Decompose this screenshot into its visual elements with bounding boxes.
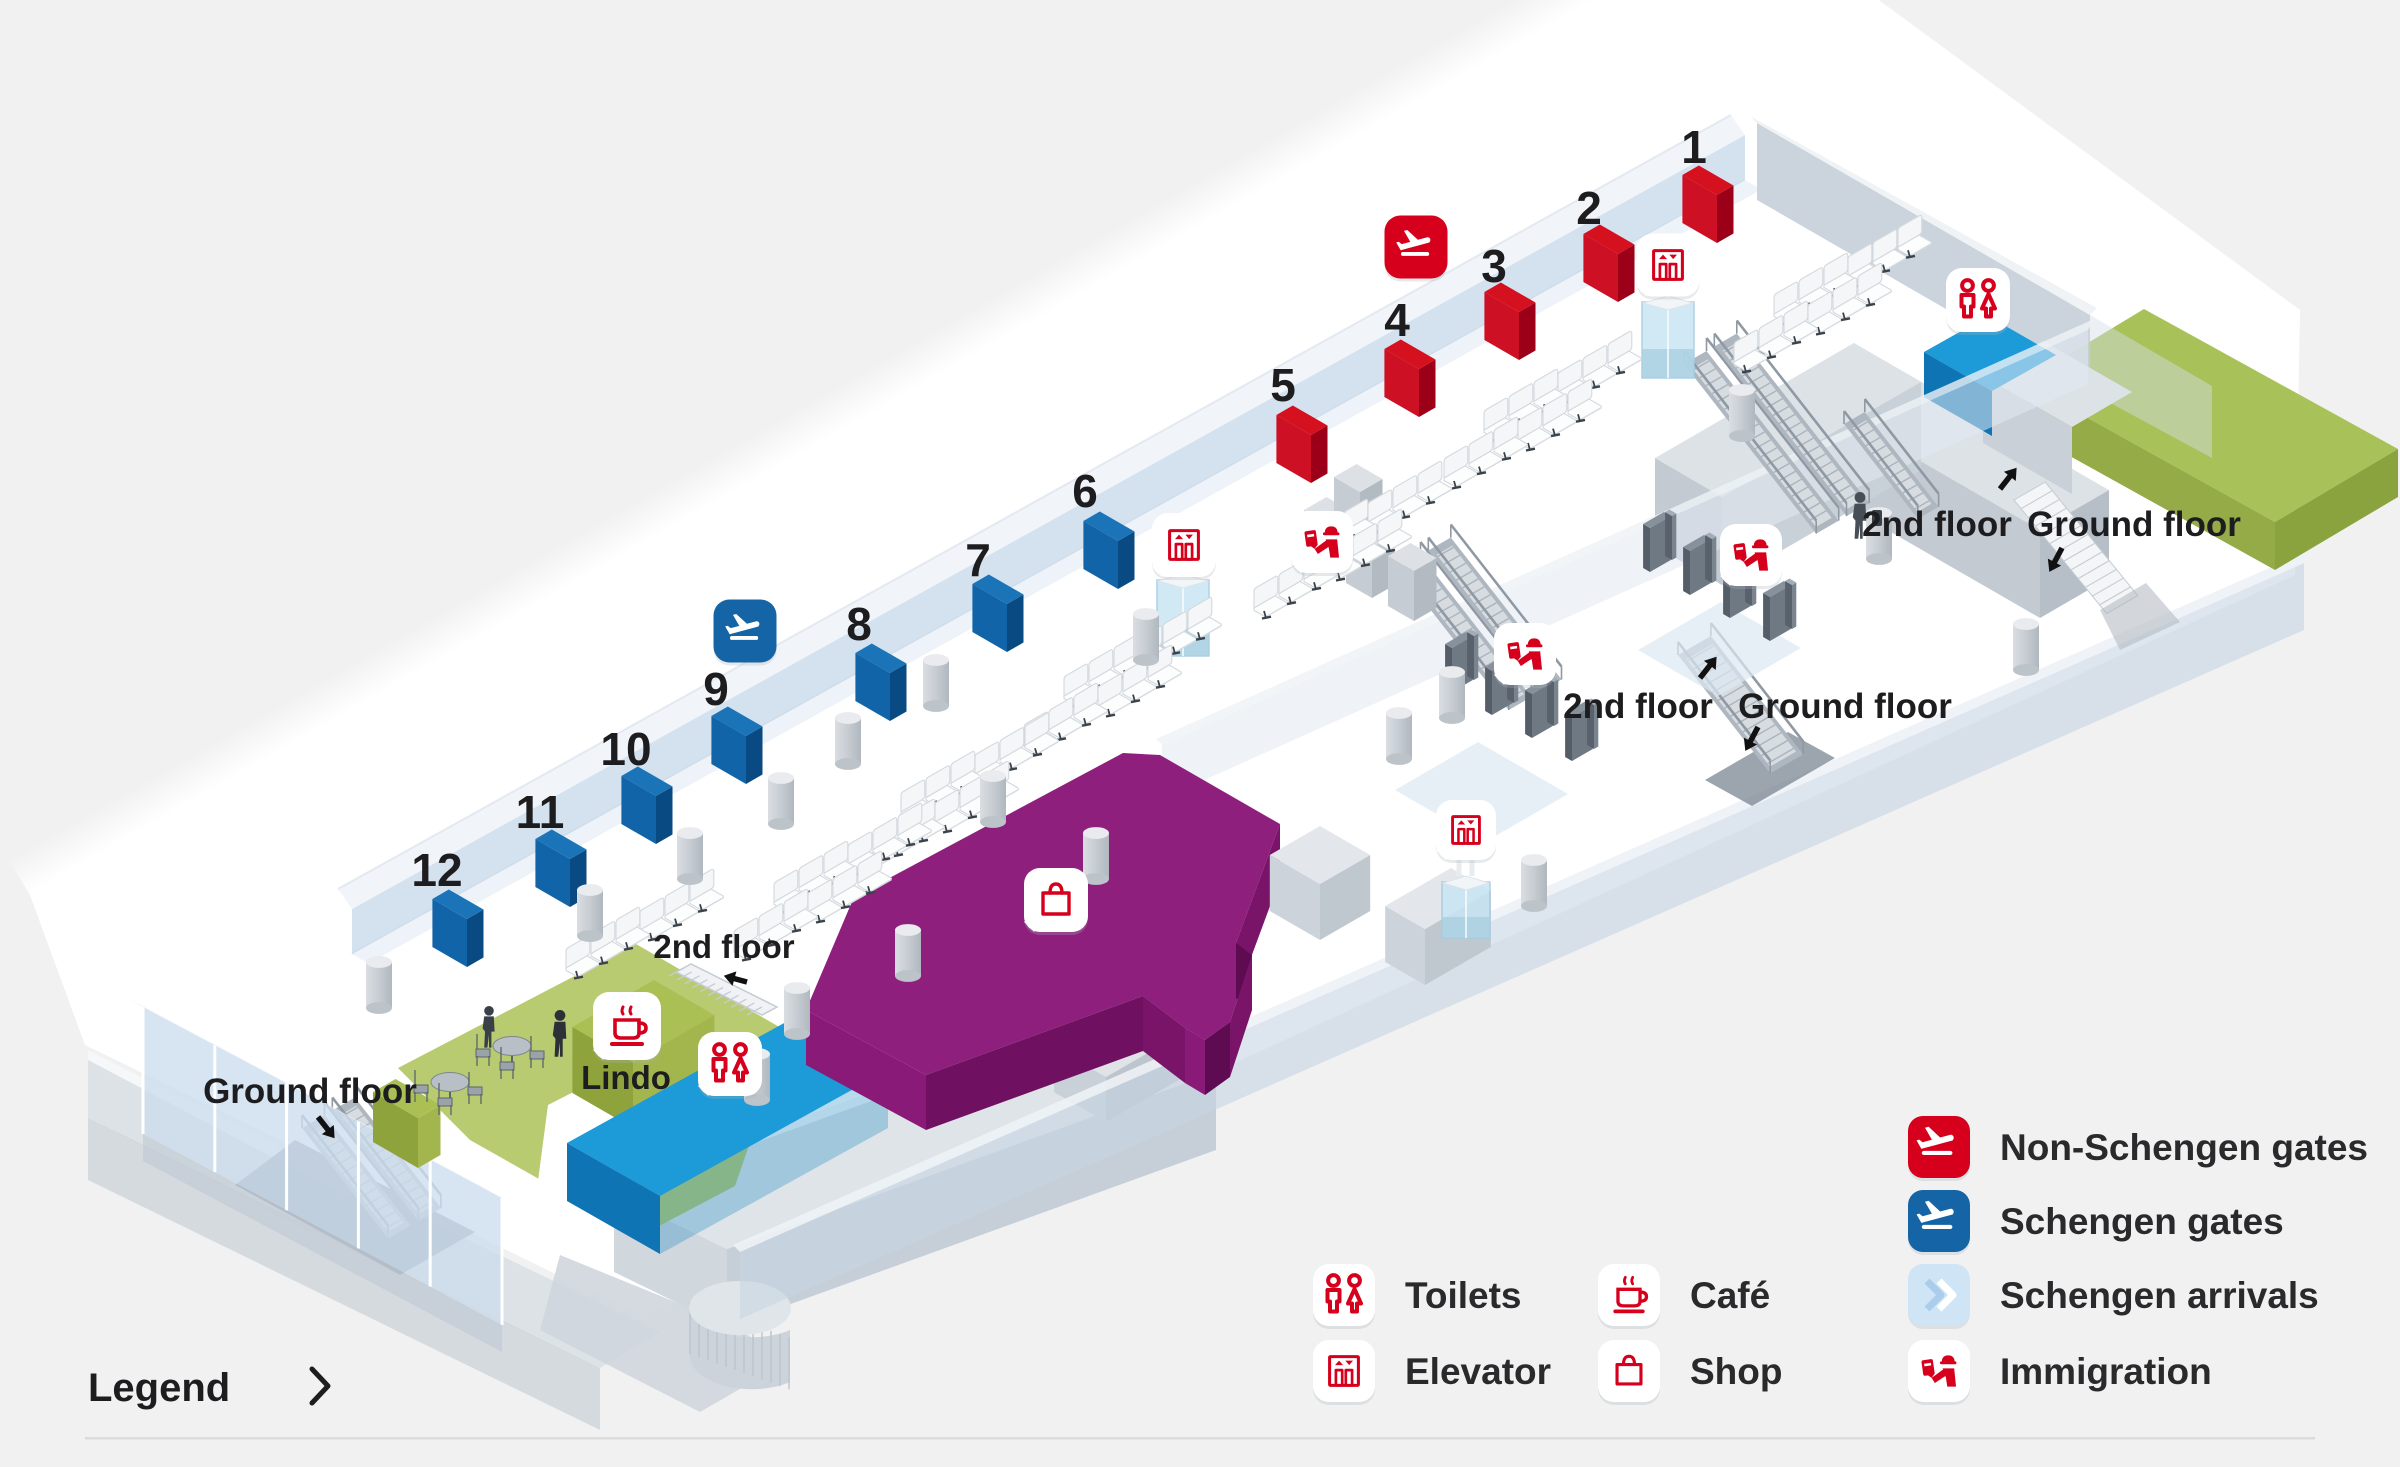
svg-text:Café: Café bbox=[1690, 1275, 1770, 1316]
svg-text:Ground floor: Ground floor bbox=[1738, 687, 1952, 726]
svg-text:3: 3 bbox=[1481, 240, 1507, 292]
svg-text:5: 5 bbox=[1270, 359, 1296, 411]
svg-text:Schengen arrivals: Schengen arrivals bbox=[2000, 1275, 2319, 1316]
svg-text:6: 6 bbox=[1072, 465, 1098, 517]
svg-text:Shop: Shop bbox=[1690, 1351, 1782, 1392]
svg-text:Ground floor: Ground floor bbox=[2027, 505, 2241, 544]
svg-text:1: 1 bbox=[1681, 121, 1707, 173]
svg-text:Schengen gates: Schengen gates bbox=[2000, 1201, 2284, 1242]
svg-text:9: 9 bbox=[703, 663, 729, 715]
svg-text:7: 7 bbox=[965, 534, 991, 586]
svg-text:2: 2 bbox=[1576, 182, 1602, 234]
svg-text:Non-Schengen gates: Non-Schengen gates bbox=[2000, 1127, 2368, 1168]
svg-text:12: 12 bbox=[411, 844, 462, 896]
svg-text:Ground floor: Ground floor bbox=[203, 1072, 417, 1111]
svg-text:2nd floor: 2nd floor bbox=[1563, 687, 1713, 726]
svg-text:4: 4 bbox=[1384, 294, 1410, 346]
svg-text:Toilets: Toilets bbox=[1405, 1275, 1522, 1316]
svg-text:Elevator: Elevator bbox=[1405, 1351, 1551, 1392]
svg-text:10: 10 bbox=[600, 723, 651, 775]
svg-text:11: 11 bbox=[516, 786, 565, 838]
svg-text:2nd floor: 2nd floor bbox=[1862, 505, 2012, 544]
svg-text:Legend: Legend bbox=[88, 1366, 230, 1410]
svg-text:2nd floor: 2nd floor bbox=[653, 928, 794, 965]
svg-text:Immigration: Immigration bbox=[2000, 1351, 2212, 1392]
svg-text:Lindo: Lindo bbox=[581, 1059, 671, 1096]
svg-text:8: 8 bbox=[846, 598, 872, 650]
